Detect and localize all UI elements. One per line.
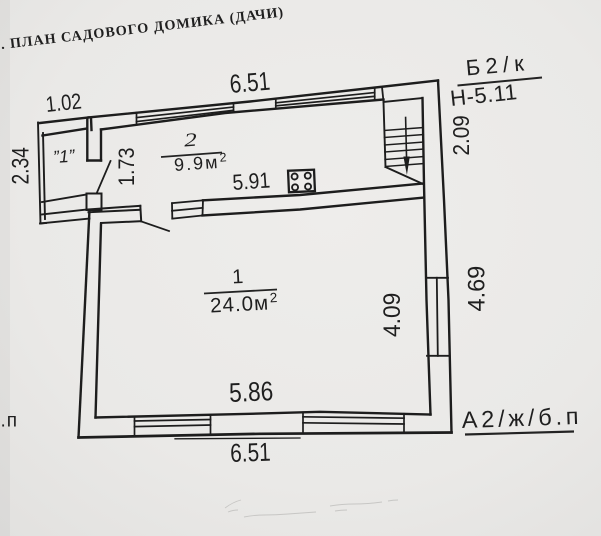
svg-text:2: 2 xyxy=(183,129,197,151)
svg-text:2.09: 2.09 xyxy=(448,115,474,155)
svg-text:2.34: 2.34 xyxy=(6,147,34,184)
svg-text:4.09: 4.09 xyxy=(378,293,405,337)
svg-text:1.73: 1.73 xyxy=(115,147,139,186)
svg-text:6.51: 6.51 xyxy=(228,66,271,98)
svg-text:6.51: 6.51 xyxy=(230,437,271,467)
svg-text:5.91: 5.91 xyxy=(232,168,271,195)
svg-text:5.86: 5.86 xyxy=(228,376,273,408)
svg-text:4.69: 4.69 xyxy=(463,266,490,312)
svg-text:.п: .п xyxy=(1,411,19,432)
svg-text:А2/ж/б.п: А2/ж/б.п xyxy=(461,403,582,433)
svg-text:”1”: ”1” xyxy=(52,145,76,167)
svg-text:24.0м2: 24.0м2 xyxy=(210,290,280,318)
svg-text:1: 1 xyxy=(232,266,244,289)
svg-text:1.02: 1.02 xyxy=(45,90,83,117)
